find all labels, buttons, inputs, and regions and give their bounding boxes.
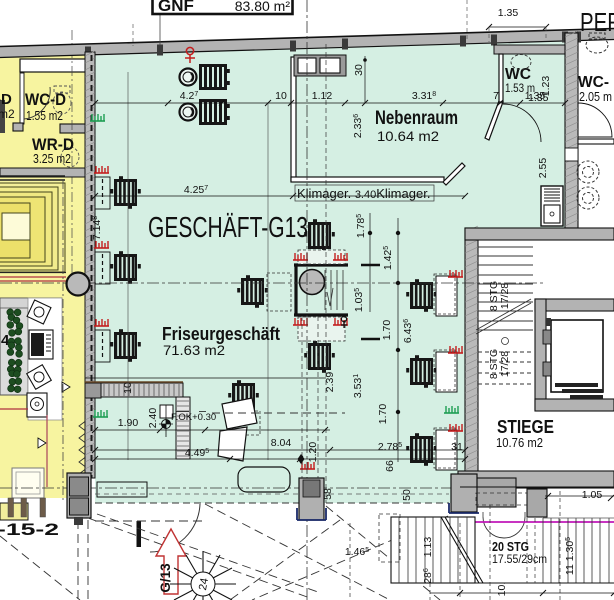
svg-text:31: 31 xyxy=(451,441,463,453)
svg-text:1.35: 1.35 xyxy=(528,92,549,104)
svg-text:10: 10 xyxy=(275,90,287,102)
svg-text:10.: 10. xyxy=(496,582,508,597)
svg-text:STIEGE: STIEGE xyxy=(497,417,554,437)
svg-text:1.13: 1.13 xyxy=(422,537,434,558)
svg-text:1.35: 1.35 xyxy=(498,7,519,19)
svg-text:66: 66 xyxy=(384,460,396,472)
svg-text:11 1.305: 11 1.305 xyxy=(564,537,576,575)
svg-text:1.05: 1.05 xyxy=(582,489,603,501)
svg-text:2.39: 2.39 xyxy=(324,372,336,393)
svg-text:10.76 m2: 10.76 m2 xyxy=(496,435,543,450)
svg-text:10.64 m2: 10.64 m2 xyxy=(377,128,439,144)
svg-text:8.04: 8.04 xyxy=(271,437,292,449)
svg-text:30: 30 xyxy=(353,64,365,76)
svg-text:71.63 m2: 71.63 m2 xyxy=(163,342,225,358)
svg-text:7: 7 xyxy=(493,90,499,102)
svg-text:50: 50 xyxy=(401,489,413,501)
svg-text:17/28: 17/28 xyxy=(499,283,511,309)
svg-text:GNF: GNF xyxy=(158,0,194,15)
svg-text:1.90: 1.90 xyxy=(118,417,139,429)
svg-text:G/13: G/13 xyxy=(158,563,173,593)
svg-text:Nebenraum: Nebenraum xyxy=(375,107,458,129)
svg-text:17.55/29cm: 17.55/29cm xyxy=(492,552,547,566)
svg-text:83.80 m²: 83.80 m² xyxy=(235,0,291,14)
svg-text:GESCHÄFT-G13: GESCHÄFT-G13 xyxy=(148,212,308,244)
svg-text:2.55: 2.55 xyxy=(537,158,549,179)
svg-text:Friseurgeschäft: Friseurgeschäft xyxy=(162,323,280,344)
svg-text:3.25 m2: 3.25 m2 xyxy=(33,151,71,166)
svg-text:2.40: 2.40 xyxy=(147,408,159,429)
svg-text:1.55 m2: 1.55 m2 xyxy=(26,108,63,123)
svg-text:2.05 m: 2.05 m xyxy=(579,89,612,104)
svg-text:F.OK+0.30: F.OK+0.30 xyxy=(171,412,216,423)
svg-text:-15-2: -15-2 xyxy=(0,520,59,539)
svg-text:1.12: 1.12 xyxy=(312,90,333,102)
svg-text:17/28: 17/28 xyxy=(499,351,511,377)
svg-text:1.20: 1.20 xyxy=(307,442,319,463)
svg-text:Klimager. 3.40Klimager.: Klimager. 3.40Klimager. xyxy=(297,186,430,201)
svg-text:24: 24 xyxy=(197,577,211,591)
svg-text:1.70: 1.70 xyxy=(381,320,393,341)
svg-text:m2: m2 xyxy=(0,107,15,121)
svg-text:-D: -D xyxy=(0,91,12,108)
svg-text:PER: PER xyxy=(580,7,614,37)
svg-text:1.70: 1.70 xyxy=(377,404,389,425)
